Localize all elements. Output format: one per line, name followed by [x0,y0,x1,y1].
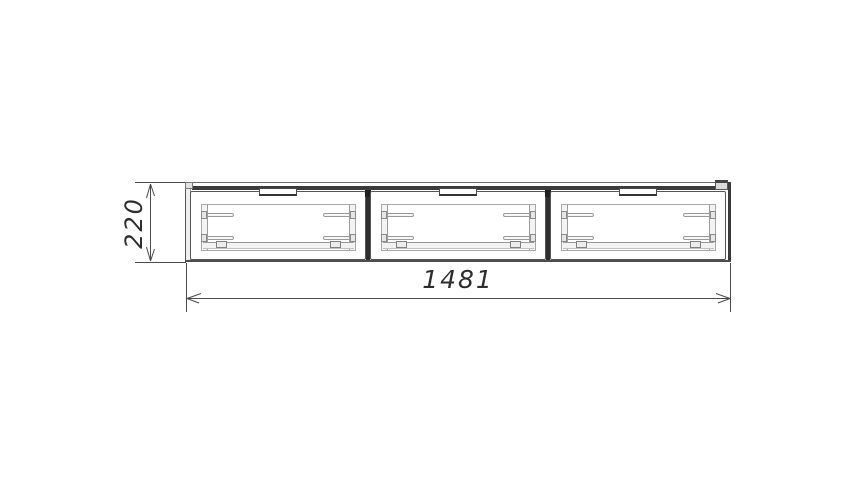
flap-inner-panel [381,204,536,251]
hinge-pin [381,234,387,242]
stay-prong [207,213,234,217]
hinge-pin [350,211,356,219]
stay-prong [683,236,710,240]
stay-prong [323,213,350,217]
stay-prong [683,213,710,217]
bottom-clip [216,241,227,248]
compartment [550,191,726,260]
height-dimension-value: 220 [120,188,148,258]
arrow-left [187,294,201,304]
bottom-clip [576,241,587,248]
flap-inner-panel [201,204,356,251]
stay-prong [387,236,414,240]
hinge-pin [350,234,356,242]
hinge-pin [530,211,536,219]
compartment [370,191,546,260]
handle-recess [439,188,477,196]
cabinet-top-edge [185,182,731,183]
hinge-pin [710,211,716,219]
left-mounting-bracket [185,182,193,189]
stay-prong [503,213,530,217]
arrow-right [716,294,730,304]
drawing-canvas: 1481 220 [0,0,856,489]
width-dimension-value: 1481 [398,265,518,294]
stay-prong [567,213,594,217]
stay-prong [503,236,530,240]
hinge-pin [561,211,567,219]
hinge-pin [530,234,536,242]
cabinet-bottom-edge [185,260,731,262]
handle-recess [619,188,657,196]
hinge-pin [710,234,716,242]
cabinet-front-view [185,182,731,262]
stay-prong [207,236,234,240]
hinge-pin [561,234,567,242]
hinge-pin [381,211,387,219]
compartment [190,191,366,260]
stay-prong [387,213,414,217]
compartment-row [190,191,726,260]
flap-inner-panel [561,204,716,251]
stay-prong [567,236,594,240]
cabinet-right-side-wall [728,182,731,261]
bottom-clip [690,241,701,248]
right-mounting-bracket [715,180,728,190]
stay-prong [323,236,350,240]
bottom-clip [510,241,521,248]
handle-recess [259,188,297,196]
bottom-clip [330,241,341,248]
hinge-pin [201,234,207,242]
bottom-clip [396,241,407,248]
hinge-pin [201,211,207,219]
